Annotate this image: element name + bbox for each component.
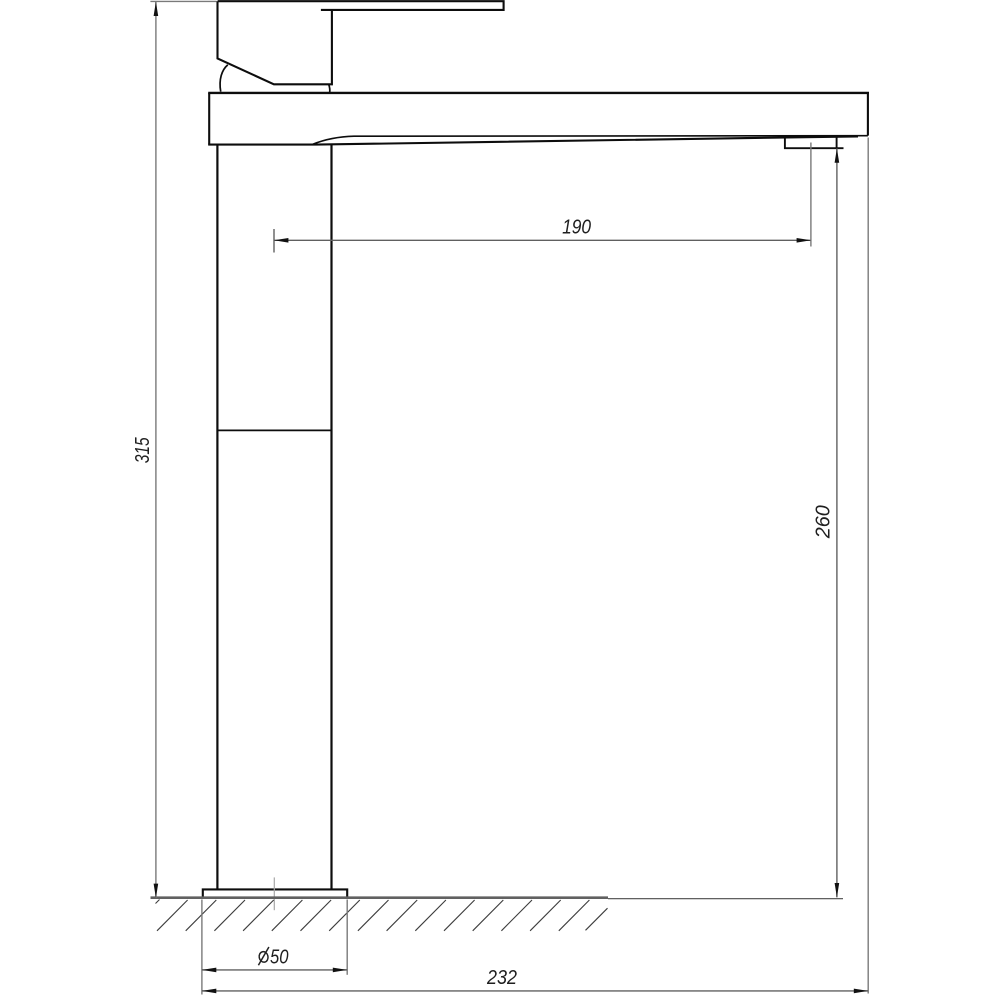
svg-text:232: 232 (486, 967, 517, 989)
svg-text:315: 315 (132, 437, 154, 464)
svg-text:190: 190 (562, 217, 591, 239)
svg-text:260: 260 (813, 505, 835, 539)
svg-text:50: 50 (270, 947, 289, 969)
